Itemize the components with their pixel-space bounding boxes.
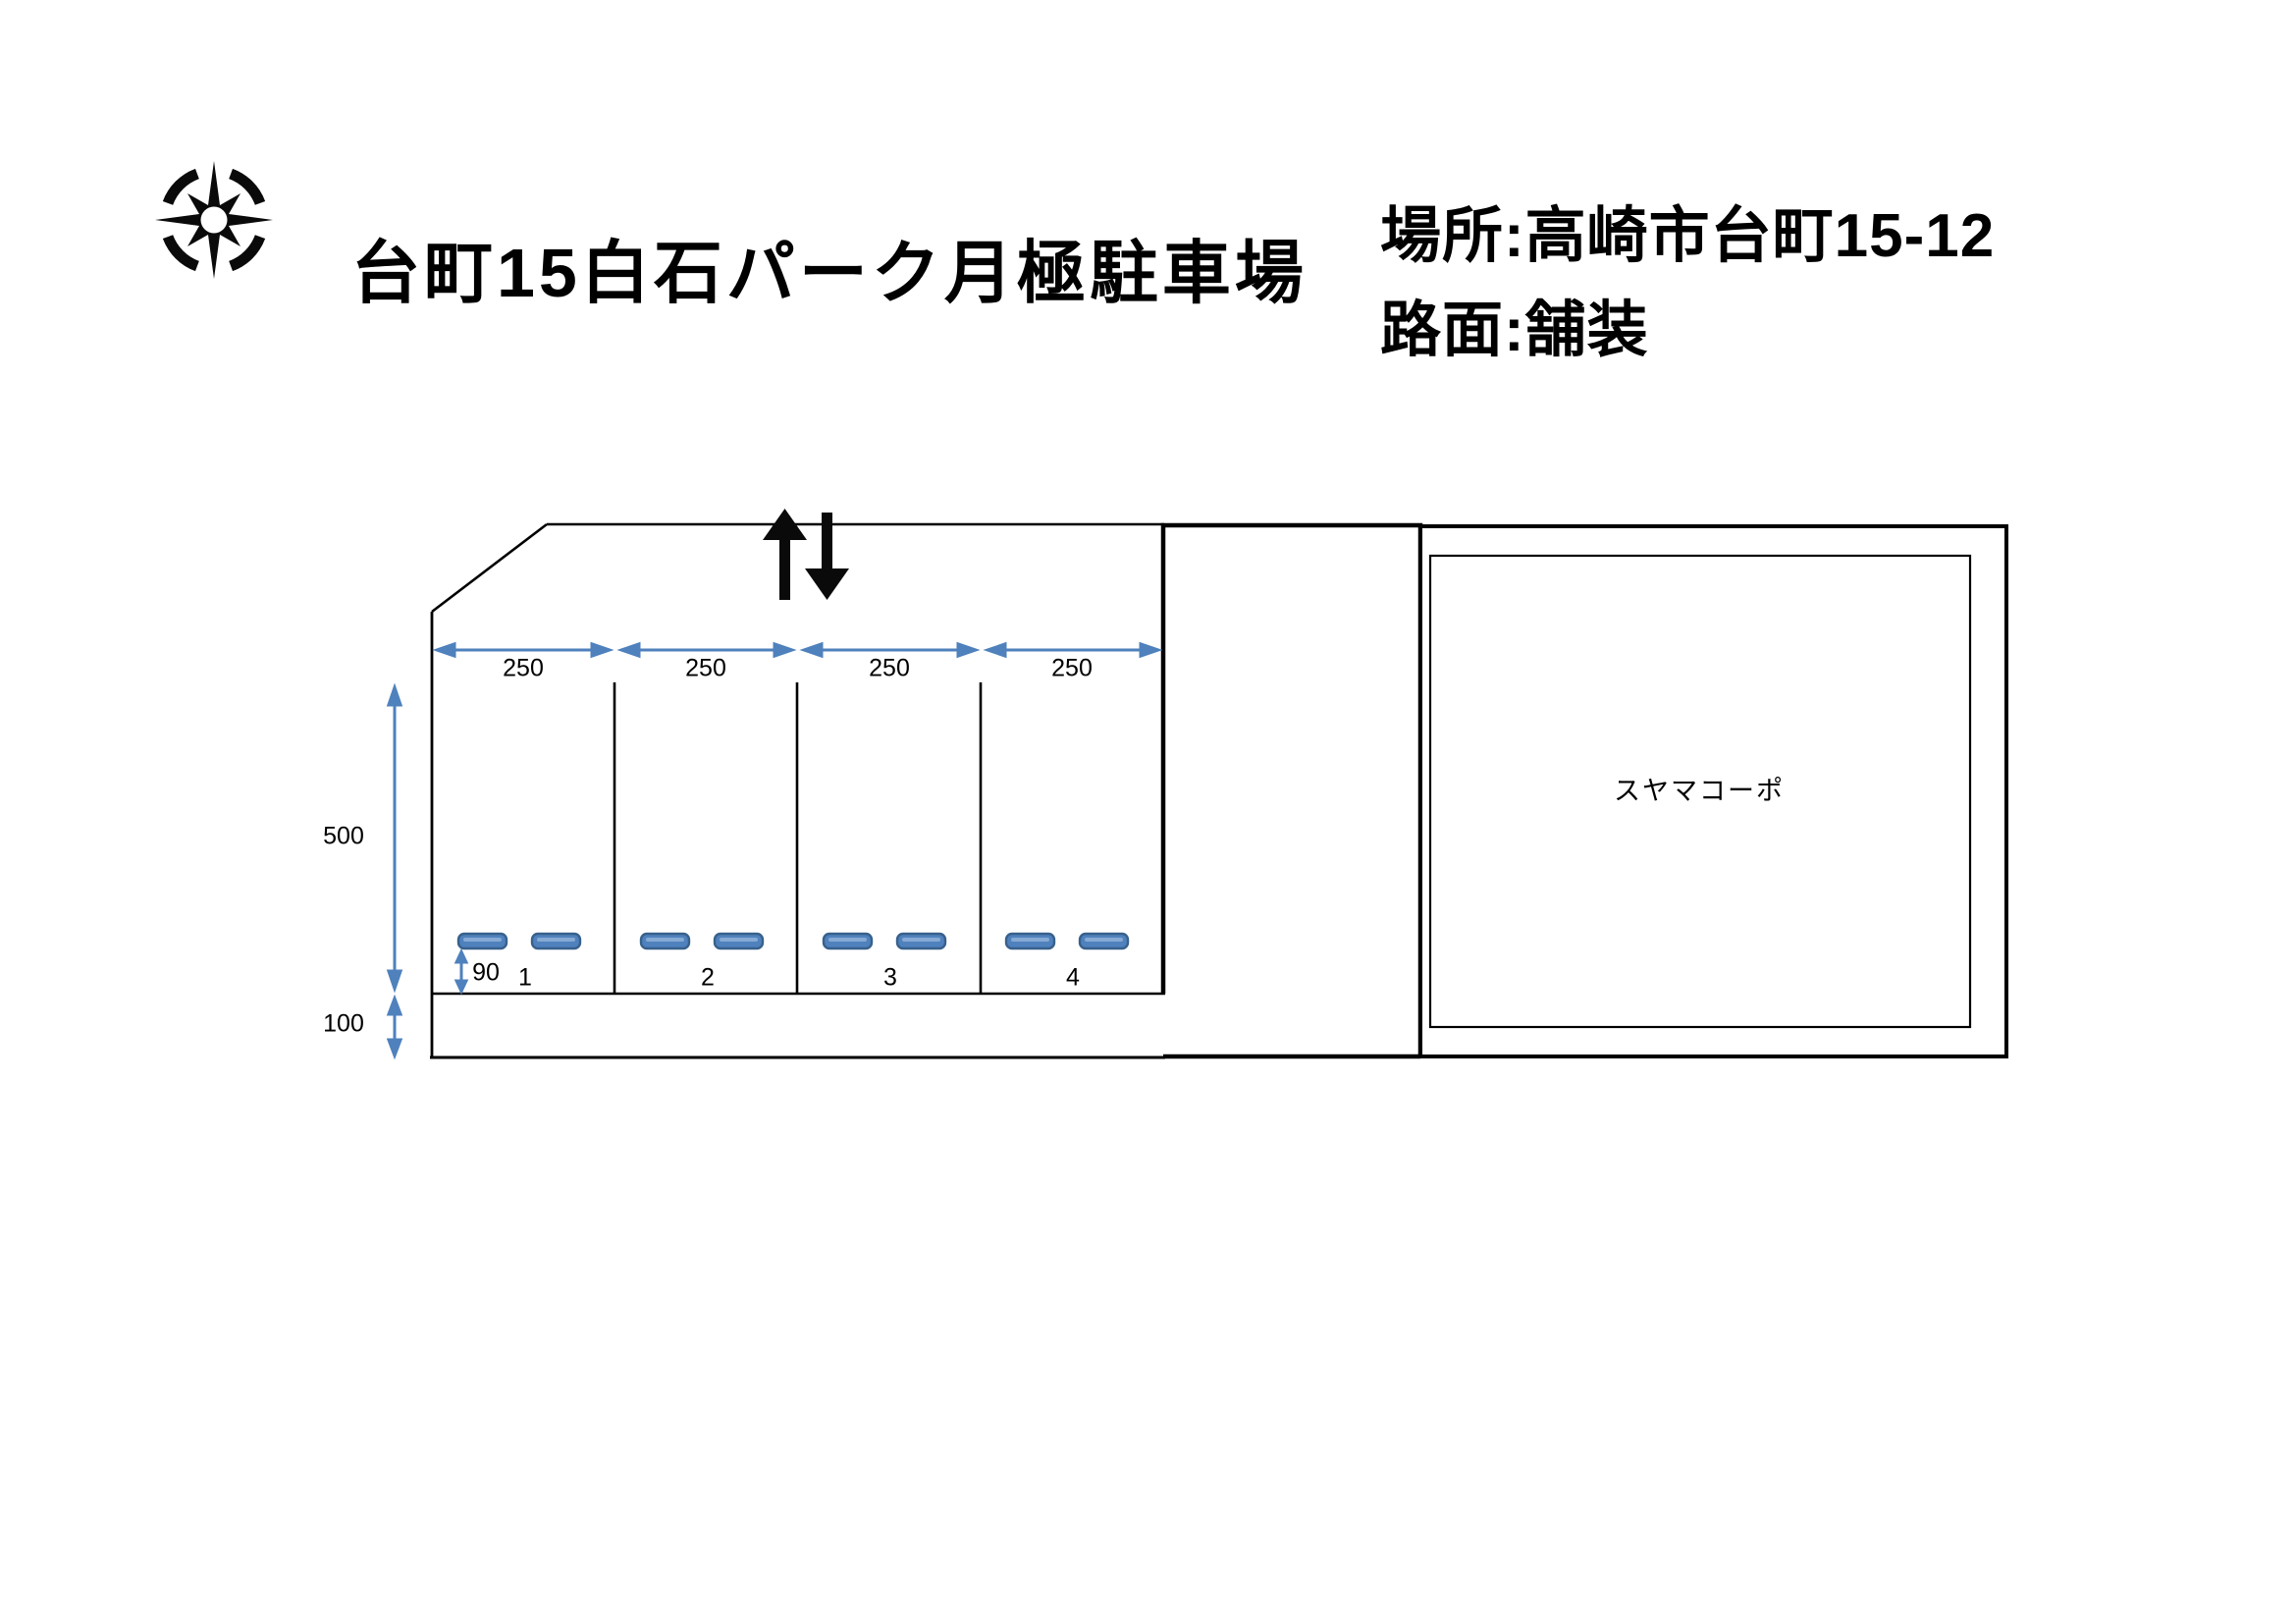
driveway-rect [1163, 525, 1420, 1056]
width-label-3: 250 [869, 655, 910, 683]
parking-lot-diagram [0, 0, 2296, 1623]
front-strip-dimension-arrow [388, 996, 402, 1058]
stall-number-4: 4 [1066, 964, 1080, 993]
depth-dimension-arrow [388, 684, 402, 992]
building-label: スヤマコーポ [1614, 770, 1785, 808]
lot-diagonal-edge [432, 524, 547, 612]
entrance-updown-arrows-icon [763, 509, 849, 600]
parking-map-page: 台町15白石パーク月極駐車場 場所:高崎市台町15-12 路面:舗装 [0, 0, 2296, 1623]
stopper-offset-arrow [455, 949, 468, 994]
stall-number-1: 1 [518, 964, 532, 993]
front-strip-label: 100 [323, 1010, 364, 1039]
width-label-1: 250 [503, 655, 544, 683]
stall-number-3: 3 [883, 964, 897, 993]
width-label-2: 250 [685, 655, 726, 683]
width-label-4: 250 [1051, 655, 1093, 683]
wheel-stopper-highlights [463, 938, 1123, 942]
stopper-offset-label: 90 [472, 959, 500, 988]
stall-number-2: 2 [701, 964, 715, 993]
depth-label: 500 [323, 823, 364, 851]
